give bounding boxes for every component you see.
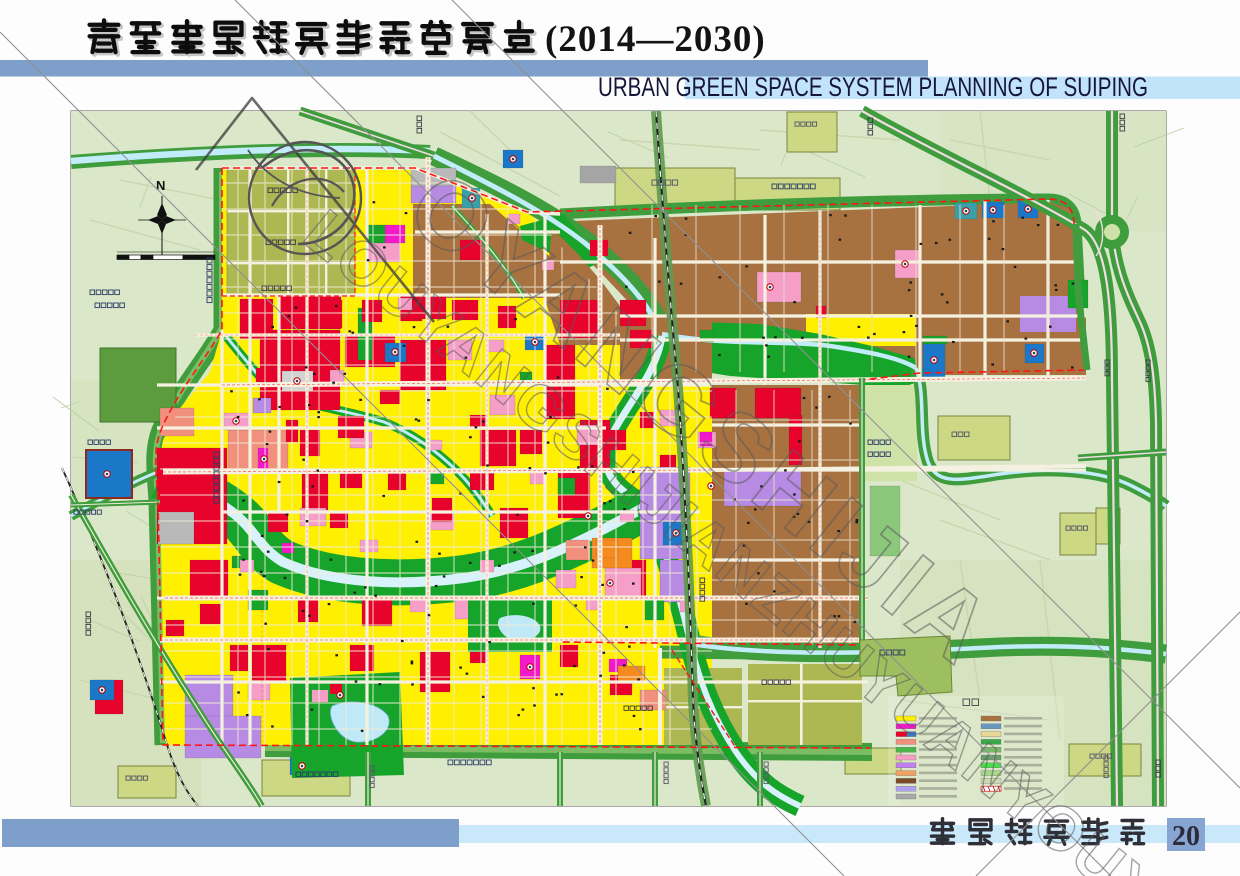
svg-text:N: N (156, 178, 165, 193)
svg-text:URBAN GREEN SPACE SYSTEM PLANN: URBAN GREEN SPACE SYSTEM PLANNING OF SUI… (598, 72, 1148, 102)
svg-text:20: 20 (1172, 821, 1200, 852)
svg-text:(2014—2030): (2014—2030) (545, 19, 766, 60)
